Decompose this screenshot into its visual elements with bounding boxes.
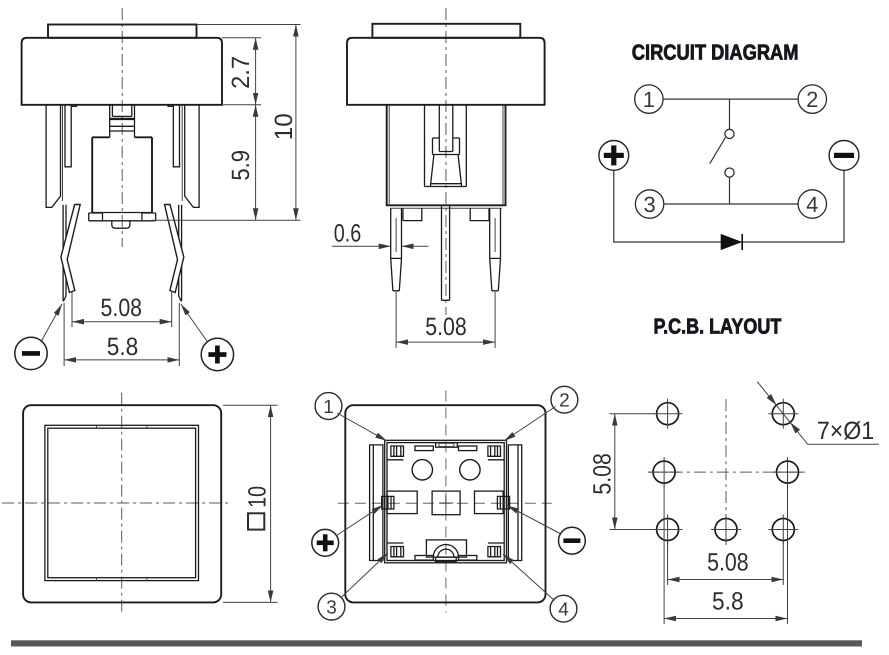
svg-text:5.8: 5.8	[107, 333, 139, 361]
svg-text:10: 10	[243, 486, 271, 508]
svg-text:0.6: 0.6	[334, 220, 362, 248]
svg-text:5.08: 5.08	[425, 313, 467, 341]
svg-text:2.7: 2.7	[227, 56, 255, 89]
svg-text:4: 4	[806, 192, 818, 217]
svg-text:5.08: 5.08	[101, 294, 143, 322]
svg-text:3: 3	[326, 597, 337, 618]
svg-text:1: 1	[323, 397, 334, 418]
svg-text:2: 2	[559, 391, 570, 412]
svg-text:5.8: 5.8	[712, 588, 744, 616]
svg-text:3: 3	[643, 192, 655, 217]
svg-text:7×Ø1: 7×Ø1	[817, 417, 874, 445]
svg-text:5.08: 5.08	[707, 549, 749, 577]
svg-text:CIRCUIT DIAGRAM: CIRCUIT DIAGRAM	[632, 40, 799, 64]
svg-text:10: 10	[270, 113, 298, 140]
svg-text:2: 2	[806, 87, 818, 112]
svg-text:5.9: 5.9	[227, 150, 255, 181]
svg-text:P.C.B. LAYOUT: P.C.B. LAYOUT	[654, 314, 782, 338]
svg-text:1: 1	[643, 87, 655, 112]
svg-text:5.08: 5.08	[589, 453, 617, 495]
svg-text:4: 4	[558, 600, 569, 621]
